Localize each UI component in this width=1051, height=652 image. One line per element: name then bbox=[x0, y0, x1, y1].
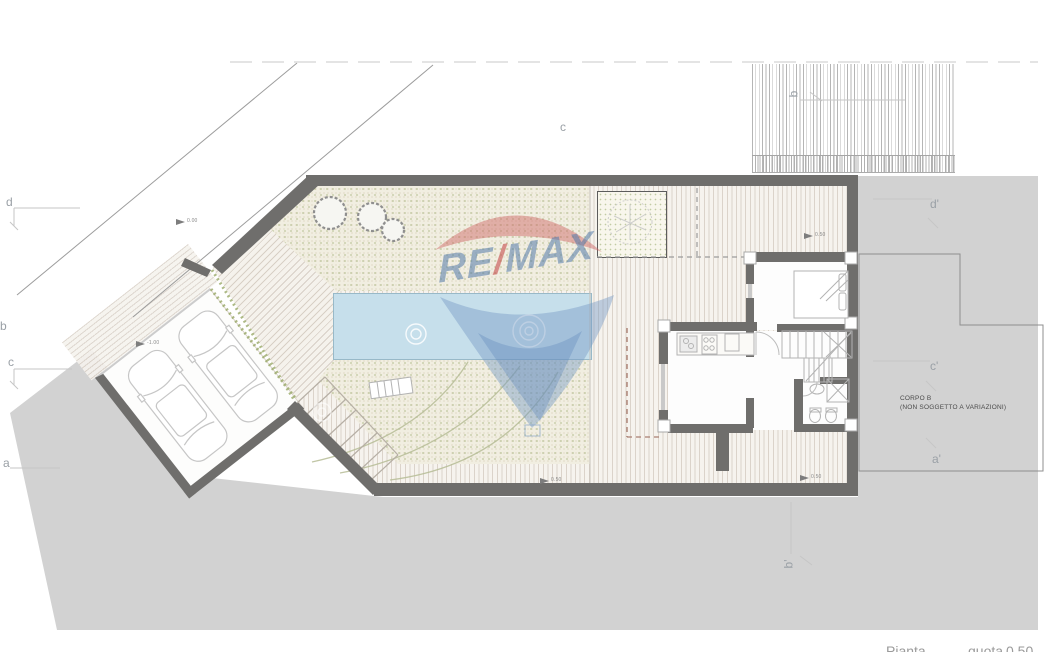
section-marker-c-top: c bbox=[560, 121, 566, 133]
section-marker-b-top: b bbox=[787, 91, 799, 98]
toilet-icon bbox=[810, 408, 838, 423]
corpo-b-outline bbox=[859, 254, 1043, 471]
remax-balloon-watermark bbox=[420, 175, 645, 445]
floor-plan-canvas: d b c a c b d' c' a' b' 0.00 -1.00 0.50 … bbox=[0, 0, 1051, 652]
elevation-value: -1.00 bbox=[147, 341, 159, 346]
bed-icon bbox=[794, 271, 848, 318]
fixtures bbox=[677, 271, 852, 423]
section-marker-b-prime: b' bbox=[782, 560, 794, 569]
hedge-lines bbox=[211, 270, 296, 401]
door-arcs bbox=[756, 332, 817, 396]
corpo-b-subtitle: (NON SOGGETTO A VARIAZIONI) bbox=[900, 403, 1040, 412]
watermark-slash: / bbox=[493, 238, 505, 283]
section-marker-c: c bbox=[8, 356, 14, 368]
elevation-value: 0.50 bbox=[551, 478, 562, 483]
elevation-value: 0.00 bbox=[187, 219, 198, 224]
elevation-value: 0.50 bbox=[811, 475, 822, 480]
caption-value: 0.50 bbox=[1006, 644, 1033, 652]
watermark-re: RE bbox=[438, 240, 494, 292]
section-marker-d: d bbox=[6, 196, 13, 208]
caption-pianta: Pianta bbox=[886, 644, 926, 652]
section-marker-b: b bbox=[0, 320, 7, 332]
section-marker-c-prime: c' bbox=[930, 360, 938, 372]
stairs-icon bbox=[782, 331, 852, 382]
kitchen-counter-icon bbox=[677, 333, 754, 355]
shrub-icon bbox=[314, 197, 404, 241]
elevation-value: 0.50 bbox=[815, 233, 826, 238]
corpo-b-title: CORPO B bbox=[900, 394, 1040, 403]
section-marker-a: a bbox=[3, 457, 10, 469]
corpo-b-note: CORPO B (NON SOGGETTO A VARIAZIONI) bbox=[900, 394, 1040, 413]
sun-lounger-icon bbox=[369, 377, 413, 399]
section-marker-a-prime: a' bbox=[932, 453, 941, 465]
road-lines bbox=[17, 63, 433, 317]
caption-quota: quota bbox=[968, 644, 1003, 652]
section-marker-d-prime: d' bbox=[930, 198, 939, 210]
